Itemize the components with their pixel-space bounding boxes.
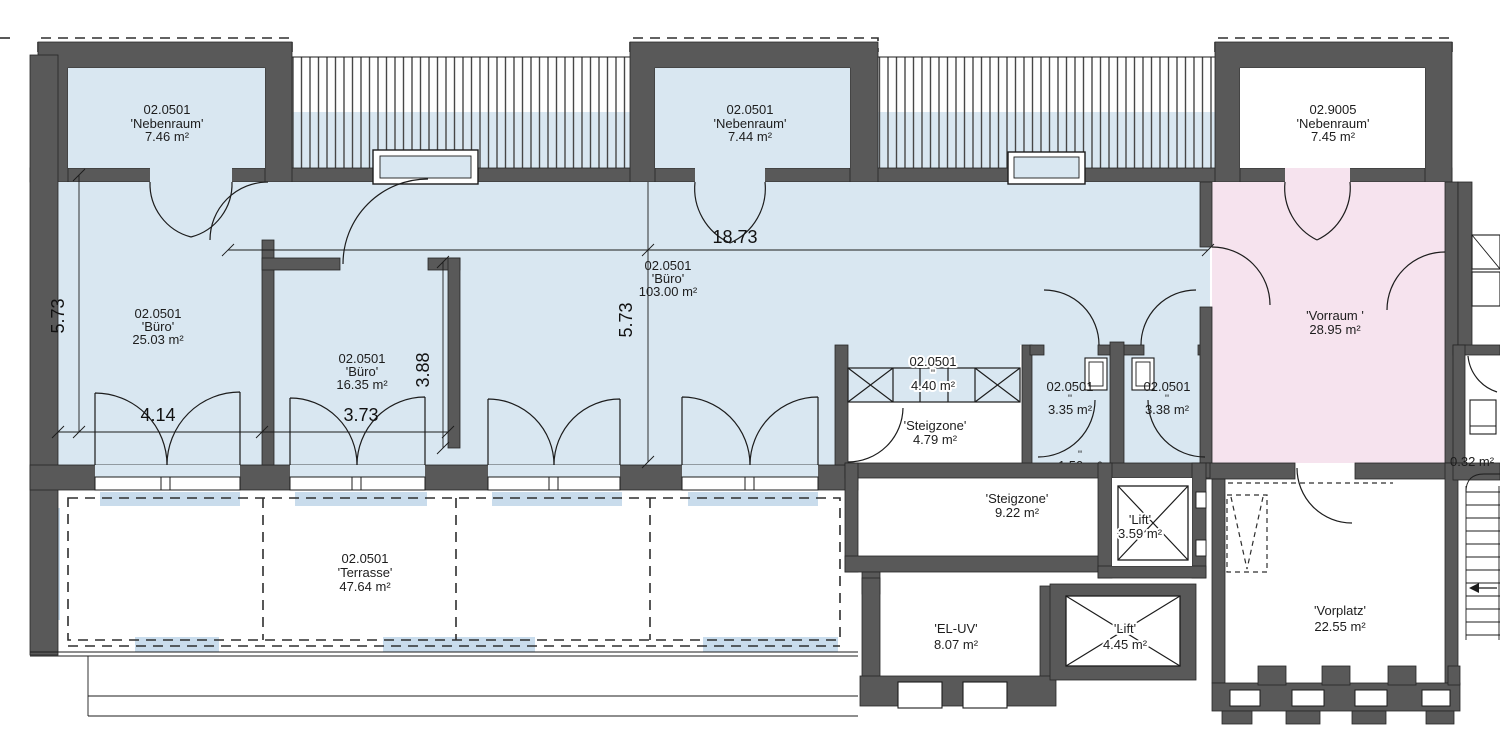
- label-code: 02.0501: [910, 354, 957, 369]
- dim-top-width: 18.73: [712, 227, 757, 247]
- label-area: 7.45 m²: [1311, 129, 1356, 144]
- label-code: 02.0501: [144, 102, 191, 117]
- floor-plan-canvas: '' 1.50 m²: [0, 0, 1500, 739]
- lift-shaft-small: [1112, 478, 1206, 566]
- label-code: 02.0501: [342, 551, 389, 566]
- label-area: 25.03 m²: [132, 332, 184, 347]
- label-area: 4.40 m²: [911, 378, 956, 393]
- label-area: 28.95 m²: [1309, 322, 1361, 337]
- label-area: 3.35 m²: [1048, 402, 1093, 417]
- label-area: 4.79 m²: [913, 432, 958, 447]
- dim-mid-height: 5.73: [616, 302, 636, 337]
- room-label-vorraum: 'Vorraum ' 28.95 m²: [1306, 308, 1364, 337]
- room-label-niche-area: 0.32 m²: [1450, 454, 1495, 469]
- label-code: 02.0501: [727, 102, 774, 117]
- dim-left-height: 5.73: [48, 298, 68, 333]
- label-name: 'EL-UV': [934, 621, 977, 636]
- label-code: 02.0501: [1144, 379, 1191, 394]
- floor-plan-drawing: '' 1.50 m²: [0, 0, 1500, 739]
- label-name: 'Lift': [1114, 621, 1136, 636]
- room-label-steigzone-small: 'Steigzone' 4.79 m²: [904, 418, 967, 447]
- room-label-el-uv: 'EL-UV' 8.07 m²: [934, 621, 979, 652]
- label-area: 7.46 m²: [145, 129, 190, 144]
- label-area: 103.00 m²: [639, 284, 698, 299]
- label-code: 02.9005: [1310, 102, 1357, 117]
- label-name: 'Steigzone': [986, 491, 1049, 506]
- label-name: 'Vorplatz': [1314, 603, 1366, 618]
- dim-room-left-width: 4.14: [140, 405, 175, 425]
- label-area: 4.45 m²: [1103, 637, 1148, 652]
- label-area: 16.35 m²: [336, 377, 388, 392]
- label-area: 8.07 m²: [934, 637, 979, 652]
- label-area: 47.64 m²: [339, 579, 391, 594]
- dim-room-small-width: 3.73: [343, 405, 378, 425]
- label-area: 22.55 m²: [1314, 619, 1366, 634]
- label-area: 9.22 m²: [995, 505, 1040, 520]
- label-name: 'Vorraum ': [1306, 308, 1364, 323]
- room-label-terrasse: 02.0501 'Terrasse' 47.64 m²: [338, 551, 393, 594]
- room-label-steigzone-large: 'Steigzone' 9.22 m²: [986, 491, 1049, 520]
- dim-room-small-height: 3.88: [413, 352, 433, 387]
- room-label-vorplatz: 'Vorplatz' 22.55 m²: [1314, 603, 1366, 634]
- label-name: 'Steigzone': [904, 418, 967, 433]
- label-area: 3.38 m²: [1145, 402, 1190, 417]
- label-name: 'Lift': [1129, 512, 1151, 527]
- label-name: 'Terrasse': [338, 565, 393, 580]
- label-area: 3.59 m²: [1118, 526, 1163, 541]
- label-code: 02.0501: [1047, 379, 1094, 394]
- label-area: 7.44 m²: [728, 129, 773, 144]
